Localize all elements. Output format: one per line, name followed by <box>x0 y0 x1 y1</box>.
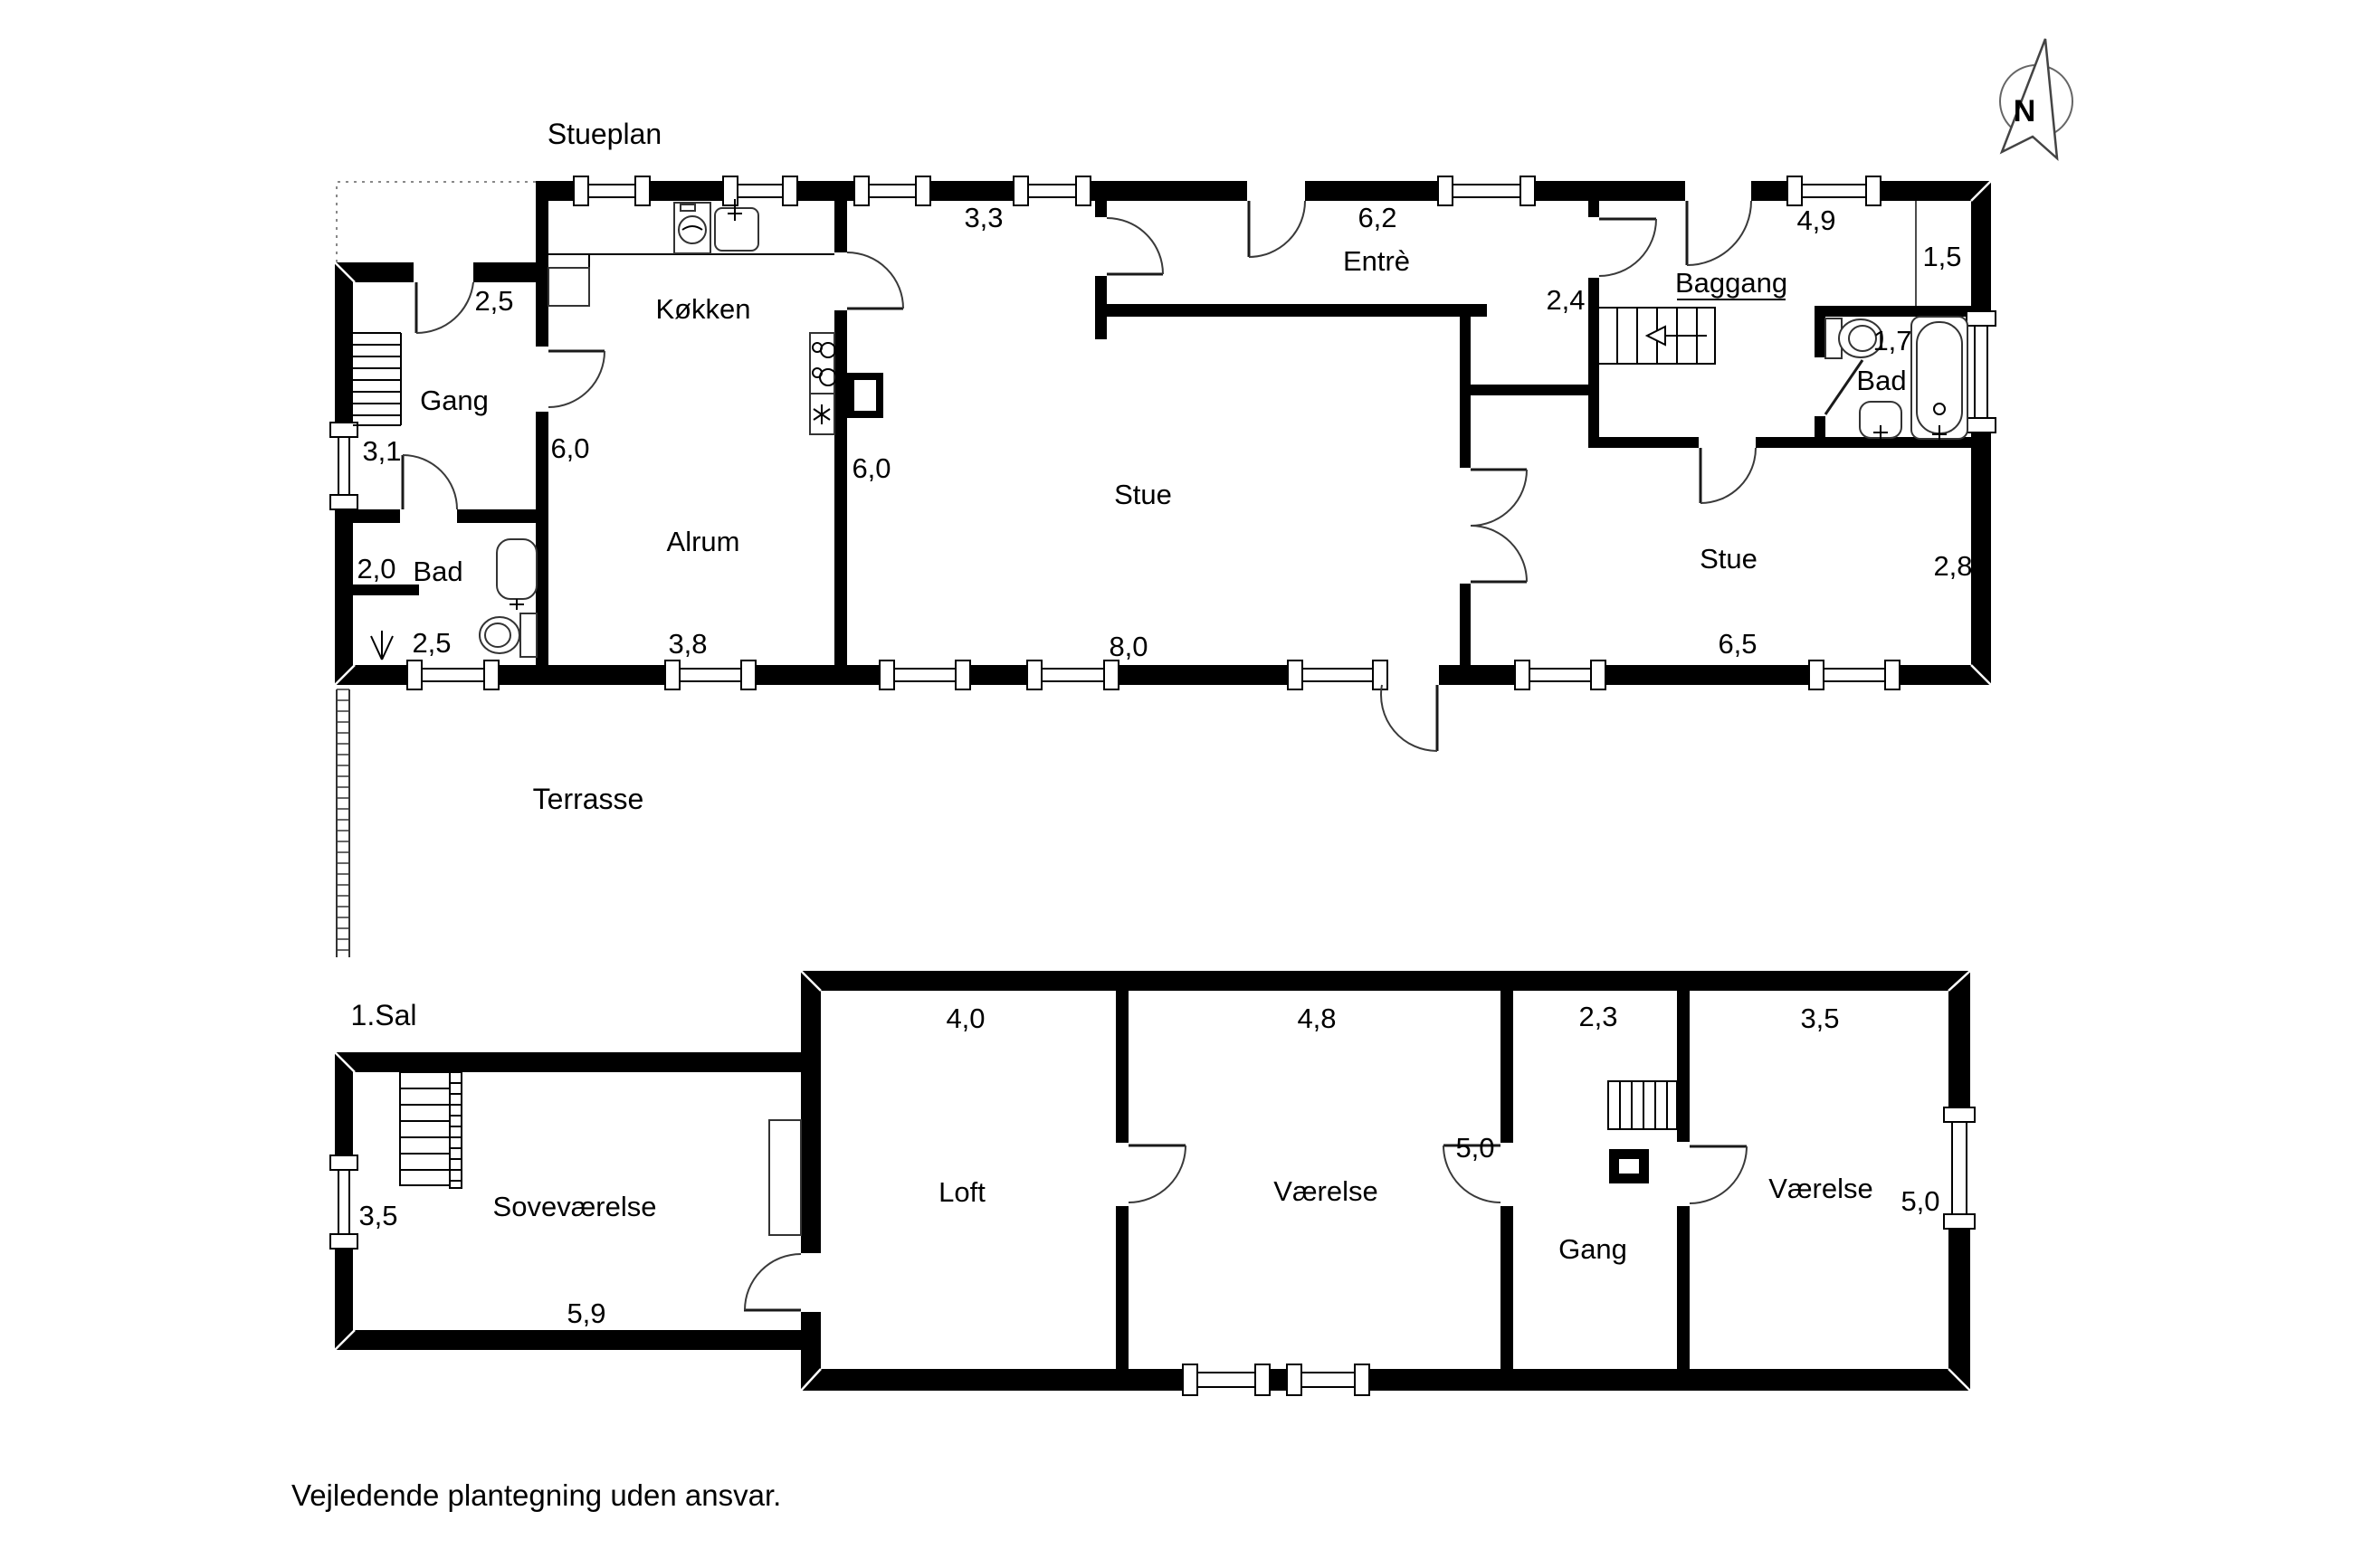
window-glass-bg <box>1034 664 1111 686</box>
floor-plan-drawing: Stueplan 2,5 Gang 3,1 2,0 Bad 2,5 Køkken… <box>0 0 2353 1568</box>
window-glass-bg <box>1295 664 1380 686</box>
room-label-sovevaerelse: Soveværelse <box>493 1191 657 1222</box>
kitchen-sink-icon <box>715 199 758 251</box>
room-label-gang-ff: Gang <box>1558 1233 1627 1265</box>
room-label-loft: Loft <box>938 1176 986 1208</box>
wall <box>1083 181 1247 201</box>
window-cap <box>330 1234 357 1249</box>
window-cap <box>1027 660 1042 689</box>
wall <box>1588 437 1699 448</box>
room-label-entre: Entrè <box>1343 245 1410 277</box>
wall <box>801 1369 1190 1391</box>
window-cap <box>854 176 869 205</box>
first-floor-labels: 1.Sal 4,0 4,8 2,3 3,5 Soveværelse 3,5 5,… <box>351 999 1940 1329</box>
window-cap <box>1591 660 1605 689</box>
window-glass-bg <box>887 664 963 686</box>
dim-gang-window: 3,1 <box>362 435 401 467</box>
ground-floor-plan: Stueplan 2,5 Gang 3,1 2,0 Bad 2,5 Køkken… <box>330 118 1996 957</box>
wall <box>963 665 1034 685</box>
wall <box>1677 1206 1690 1369</box>
dim-sovevaerelse-window: 3,5 <box>358 1200 397 1231</box>
dim-vaerelse-right-top: 3,5 <box>1800 1003 1839 1034</box>
first-floor-windows <box>330 1107 1975 1395</box>
dim-stue-left-side: 6,0 <box>852 452 891 484</box>
stove-icon <box>810 333 836 394</box>
room-label-stue-left: Stue <box>1114 479 1172 510</box>
window-cap <box>1287 1364 1301 1395</box>
window-cap <box>330 1155 357 1170</box>
dim-entre-passage: 2,4 <box>1546 284 1585 316</box>
window-cap <box>1183 1364 1197 1395</box>
ground-floor-labels: Stueplan 2,5 Gang 3,1 2,0 Bad 2,5 Køkken… <box>357 118 1972 815</box>
window-cap <box>1944 1107 1975 1122</box>
window-glass-bg <box>1816 664 1892 686</box>
wall <box>1116 991 1129 1143</box>
door-arc <box>416 282 473 333</box>
dim-vaerelse-mid-top: 4,8 <box>1297 1003 1336 1034</box>
window-cap <box>1967 418 1996 432</box>
dim-entre-top: 6,2 <box>1357 202 1396 233</box>
wall <box>457 509 536 523</box>
window-glass-bg <box>414 664 491 686</box>
stairs <box>1608 1081 1677 1129</box>
double-door-arc <box>1471 470 1527 526</box>
wall <box>1460 584 1471 665</box>
window-cap <box>916 176 930 205</box>
door-arc <box>1249 201 1305 257</box>
wall <box>643 181 730 201</box>
door-arc <box>1599 219 1656 276</box>
toilet-icon <box>480 613 537 657</box>
wall <box>834 201 847 252</box>
wall <box>1892 665 1991 685</box>
terrace-label: Terrasse <box>533 783 644 815</box>
window-cap <box>1373 660 1387 689</box>
compass-north-icon: N <box>2000 39 2072 158</box>
kitchen-cabinet <box>548 268 589 306</box>
wall <box>1588 201 1599 217</box>
wall <box>1528 181 1685 201</box>
door-arc <box>745 1254 801 1310</box>
chimney <box>1609 1149 1649 1183</box>
window-cap <box>484 660 499 689</box>
room-label-bad-right: Bad <box>1856 365 1906 396</box>
window-glass-bg <box>1445 180 1528 202</box>
window-cap <box>880 660 894 689</box>
wall <box>1439 665 1522 685</box>
stairs <box>353 333 401 425</box>
window-cap <box>1014 176 1028 205</box>
dim-bad-right-width: 1,7 <box>1872 325 1911 356</box>
wall <box>1971 425 1991 685</box>
dim-alrum-bottom: 3,8 <box>668 628 707 660</box>
terrace-edge-hatch <box>337 689 349 957</box>
freezer-icon <box>810 394 834 434</box>
dim-stue-left-bottom: 8,0 <box>1109 631 1148 662</box>
room-label-bad-left: Bad <box>413 556 462 587</box>
wall <box>1362 1369 1970 1391</box>
dim-sovevaerelse-bottom: 5,9 <box>567 1297 605 1329</box>
dim-vaerelse-right-side: 5,0 <box>1900 1185 1939 1217</box>
wall <box>801 971 1970 991</box>
dim-gang-top: 2,3 <box>1578 1001 1617 1032</box>
window-cap <box>1944 1214 1975 1229</box>
room-label-stue-right: Stue <box>1700 543 1758 575</box>
window-cap <box>783 176 797 205</box>
wall <box>1471 385 1599 395</box>
room-label-vaerelse-mid: Værelse <box>1273 1175 1377 1207</box>
wall <box>335 1052 801 1072</box>
wall <box>335 1330 801 1350</box>
dim-loft-top: 4,0 <box>946 1003 985 1034</box>
wall <box>1500 991 1513 1143</box>
wall <box>1815 416 1825 437</box>
window-cap <box>1288 660 1302 689</box>
dim-stue-right-side: 2,8 <box>1933 550 1972 582</box>
wall <box>1971 181 1991 318</box>
window-cap <box>741 660 756 689</box>
stairs <box>1597 308 1715 364</box>
double-door-arc <box>1471 526 1527 582</box>
porch-dotted-outline <box>337 182 536 262</box>
window-cap <box>407 660 422 689</box>
floor-title-ground: Stueplan <box>548 118 662 150</box>
window-cap <box>1515 660 1529 689</box>
wall <box>1095 304 1487 317</box>
floor-plan-page: Stueplan 2,5 Gang 3,1 2,0 Bad 2,5 Køkken… <box>0 0 2353 1568</box>
window-glass-bg <box>1190 1368 1262 1392</box>
chimney-flue-inner <box>854 380 876 411</box>
bathroom-sink-icon <box>1860 402 1901 440</box>
window-cap <box>1866 176 1881 205</box>
door-arc <box>1381 685 1437 751</box>
window-glass-bg <box>1948 1115 1971 1221</box>
window-cap <box>1076 176 1091 205</box>
wall-stub <box>353 584 419 595</box>
window-cap <box>1104 660 1119 689</box>
window-glass-bg <box>1970 318 1992 425</box>
window-cap <box>1809 660 1824 689</box>
floor-title-first: 1.Sal <box>351 999 417 1031</box>
room-label-vaerelse-right: Værelse <box>1768 1173 1872 1204</box>
wall <box>536 412 548 665</box>
wall <box>335 262 414 282</box>
door-arc <box>403 455 457 509</box>
room-label-kokken: Køkken <box>655 293 750 325</box>
window-cap <box>574 176 588 205</box>
bathtub-icon <box>1911 317 1967 442</box>
window-cap <box>1355 1364 1369 1395</box>
window-glass-bg <box>672 664 748 686</box>
wall <box>801 971 821 1253</box>
door-arc <box>1129 1145 1186 1202</box>
dim-baggang-top: 4,9 <box>1796 204 1835 236</box>
door-arc <box>1687 201 1751 265</box>
window-cap <box>1438 176 1453 205</box>
dim-bad-left-bottom: 2,5 <box>412 627 451 659</box>
window-cap <box>330 495 357 509</box>
window-cap <box>956 660 970 689</box>
wall <box>834 310 847 665</box>
window-glass-bg <box>1294 1368 1362 1392</box>
window-glass-bg <box>581 180 643 202</box>
dim-kokken-top: 3,3 <box>964 202 1003 233</box>
window-cap <box>635 176 650 205</box>
wardrobe <box>769 1120 801 1235</box>
wall <box>1677 991 1690 1142</box>
dim-bad-left-width: 2,0 <box>357 553 395 584</box>
wall <box>1500 1206 1513 1369</box>
bathroom-sink-icon <box>497 539 537 610</box>
wall <box>335 262 353 430</box>
wall <box>1948 971 1970 1115</box>
window-cap <box>1255 1364 1270 1395</box>
window-glass-bg <box>730 180 790 202</box>
wall <box>1948 1221 1970 1391</box>
wall <box>923 181 1021 201</box>
dim-kokken-left: 6,0 <box>550 432 589 464</box>
window-glass-bg <box>334 430 354 502</box>
wall <box>1460 317 1471 468</box>
entrance-arrow-icon <box>371 631 393 660</box>
window-cap <box>1520 176 1535 205</box>
window-glass-bg <box>1522 664 1598 686</box>
door-arc <box>847 252 903 309</box>
door-arc <box>548 351 605 407</box>
dim-vaerelse-mid-side: 5,0 <box>1455 1132 1494 1164</box>
window-glass-bg <box>862 180 923 202</box>
dim-niche-width: 1,5 <box>1922 241 1961 272</box>
wall <box>1598 665 1816 685</box>
disclaimer-text: Vejledende plantegning uden ansvar. <box>291 1478 781 1512</box>
wall <box>1111 665 1295 685</box>
door-arc <box>1690 1146 1747 1203</box>
stairs <box>400 1072 462 1188</box>
dim-gang-door: 2,5 <box>474 285 513 317</box>
wall <box>353 509 400 523</box>
room-label-alrum: Alrum <box>667 526 740 557</box>
wall <box>1815 306 1971 317</box>
wall <box>1095 201 1107 217</box>
first-floor-doors <box>744 1145 1747 1310</box>
first-floor-plan: 1.Sal 4,0 4,8 2,3 3,5 Soveværelse 3,5 5,… <box>330 971 1975 1395</box>
window-cap <box>1885 660 1900 689</box>
door-arc <box>1107 218 1163 274</box>
wall <box>1116 1206 1129 1369</box>
window-glass-bg <box>1021 180 1083 202</box>
wall <box>491 665 672 685</box>
window-glass-bg <box>1795 180 1873 202</box>
compass-north-label: N <box>2014 94 2036 128</box>
dim-stue-right-bottom: 6,5 <box>1718 628 1757 660</box>
door-arc <box>1700 448 1756 503</box>
window-glass-bg <box>334 1163 354 1241</box>
wall <box>1305 181 1445 201</box>
window-cap <box>1967 311 1996 326</box>
wall <box>790 181 862 201</box>
room-label-baggang: Baggang <box>1675 267 1787 299</box>
window-cap <box>1787 176 1802 205</box>
wall <box>748 665 887 685</box>
window-cap <box>665 660 680 689</box>
dishwasher-icon <box>674 203 710 253</box>
room-label-gang: Gang <box>420 385 489 416</box>
wall <box>536 201 548 347</box>
wall <box>1815 306 1825 357</box>
wall <box>335 502 353 685</box>
